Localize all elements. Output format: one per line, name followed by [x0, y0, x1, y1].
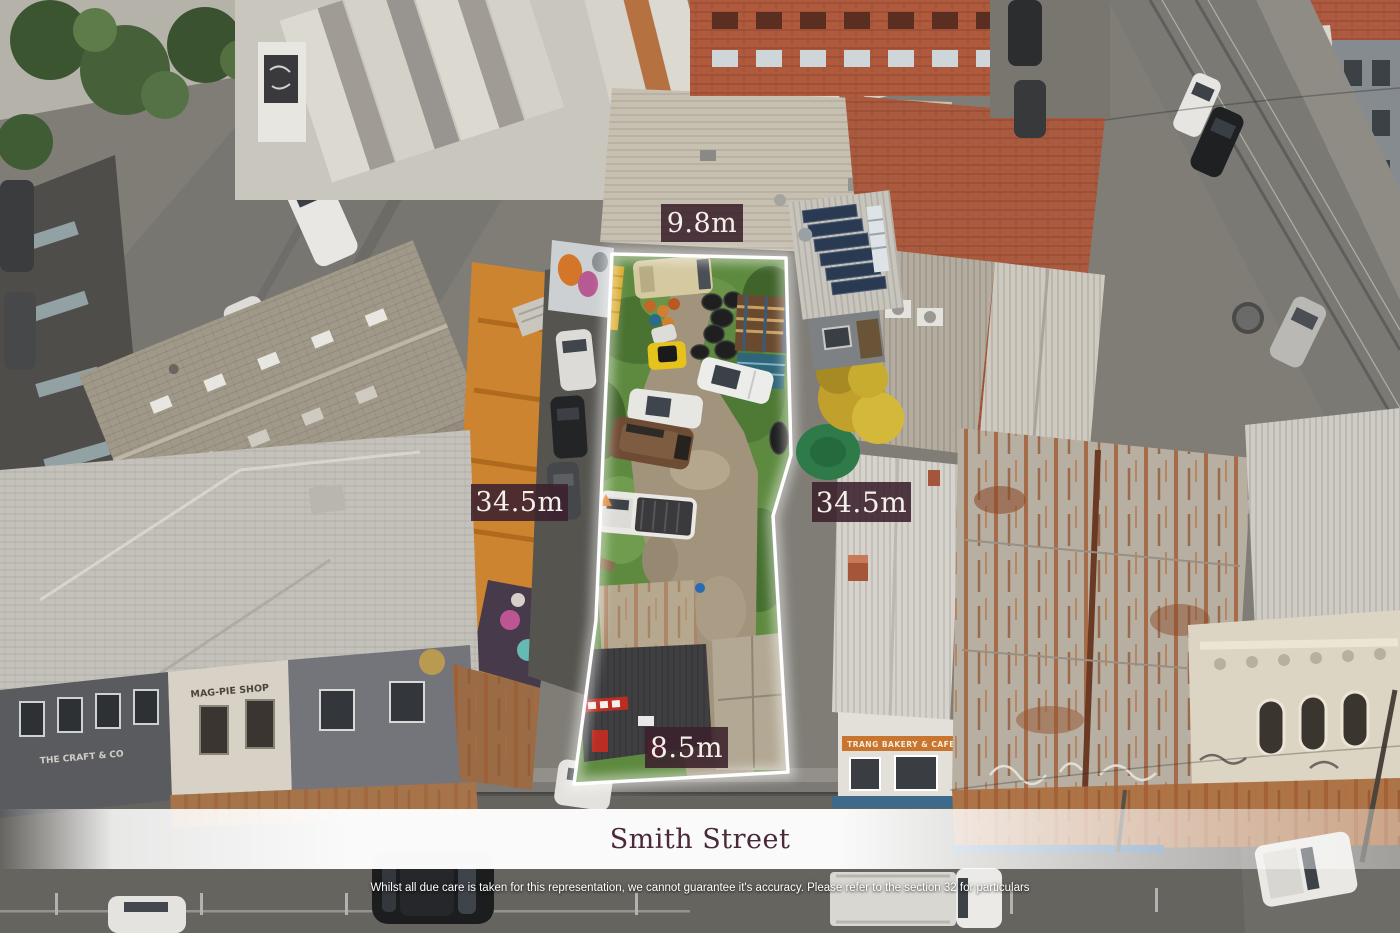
- aerial-scene: THE CRAFT & CO MAG-PIE SHOP TRANG BAKERY…: [0, 0, 1400, 933]
- dimension-label-left: 34.5m: [471, 484, 568, 521]
- street-name-banner: Smith Street: [0, 809, 1400, 869]
- dimension-label-top: 9.8m: [661, 204, 743, 242]
- dimension-label-bottom: 8.5m: [645, 727, 728, 768]
- dimension-label-right: 34.5m: [812, 482, 911, 522]
- street-name-label: Smith Street: [610, 824, 791, 855]
- disclaimer-text: Whilst all due care is taken for this re…: [0, 882, 1400, 894]
- white-truck: [830, 868, 1002, 928]
- bakery-sign: TRANG BAKERY & CAFE: [847, 740, 955, 749]
- aerial-property-photo: THE CRAFT & CO MAG-PIE SHOP TRANG BAKERY…: [0, 0, 1400, 933]
